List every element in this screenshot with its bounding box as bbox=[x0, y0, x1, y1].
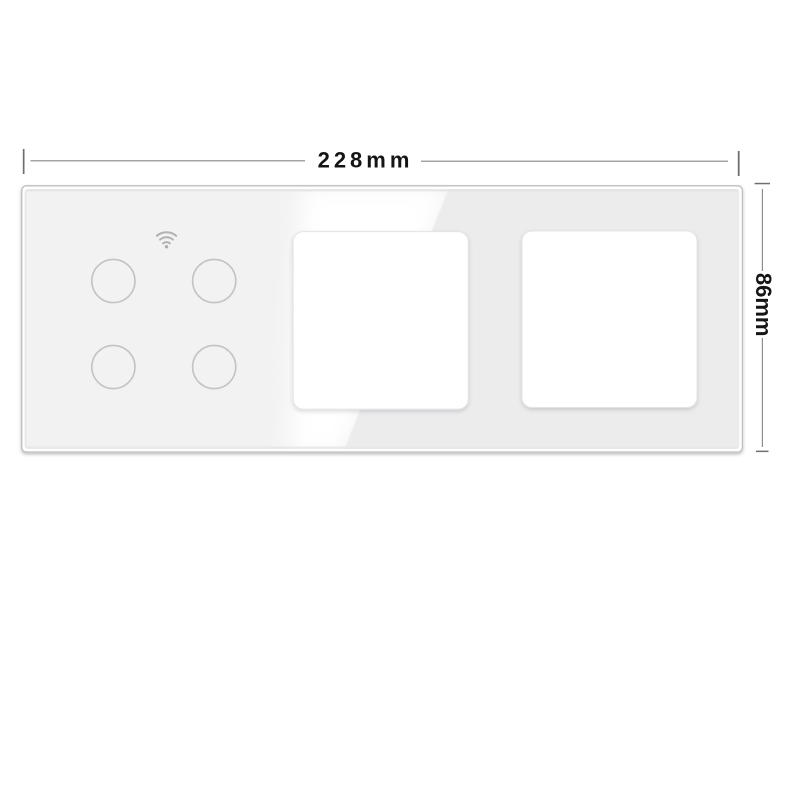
svg-text:86mm: 86mm bbox=[751, 273, 776, 337]
svg-text:228mm: 228mm bbox=[318, 147, 414, 172]
